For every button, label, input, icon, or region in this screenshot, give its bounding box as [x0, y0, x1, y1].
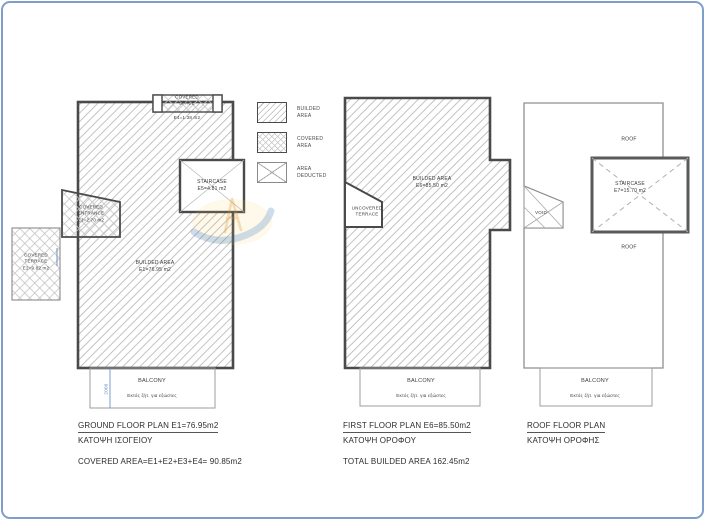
roof-balcony-label: BALCONY [581, 378, 609, 386]
ground-balcony-dimension: 2000 [104, 383, 109, 394]
legend-item-builded: BUILDED AREA [257, 102, 326, 123]
drawing-sheet: COVERED SPACE E4=1.38 m2 STAIRCASE E5=4.… [0, 0, 705, 520]
ground-staircase-label: STAIRCASE E5=4.81 m2 [197, 179, 227, 193]
legend-label: BUILDED AREA [297, 106, 320, 120]
legend-label: COVERED AREA [297, 136, 323, 150]
uncovered-terrace-label: UNCOVERED TERRACE [352, 206, 383, 219]
ground-builded-area-label: BUILDED AREA E1=76.95 m2 [136, 260, 175, 274]
first-floor-plan-drawing [330, 90, 530, 420]
roof-staircase-label: STAIRCASE E7=15.70 m2 [614, 181, 646, 195]
roof-outline-shape [524, 103, 683, 368]
covered-space-end-cap-right [213, 95, 222, 112]
first-floor-builded-area-label: BUILDED AREA E6=85.50 m2 [413, 176, 452, 190]
ground-balcony-note: Εκτός ζήτ. για εξώστες [127, 393, 176, 399]
roof-label-bottom: ROOF [621, 245, 636, 252]
roof-title: ROOF FLOOR PLAN [527, 421, 605, 433]
roof-balcony-note: Εκτός ζήτ. για εξώστες [570, 393, 619, 399]
roof-title-block: ROOF FLOOR PLAN ΚΑΤΟΨΗ ΟΡΟΦΗΣ [527, 421, 605, 445]
covered-terrace-label: COVERED TERRACE E2=9.82 m2 [23, 253, 49, 272]
first-floor-title: FIRST FLOOR PLAN E6=85.50m2 [343, 421, 471, 433]
ground-balcony-label: BALCONY [138, 378, 166, 386]
covered-space-label: COVERED SPACE [175, 95, 199, 108]
covered-entrance-label: COVERED ENTRANCE E3=2.70 m2 [78, 205, 104, 224]
ground-floor-title: GROUND FLOOR PLAN E1=76.95m2 [78, 421, 218, 433]
first-floor-balcony-label: BALCONY [407, 378, 435, 386]
covered-space-end-cap-left [153, 95, 162, 112]
void-label: VOID [535, 210, 547, 216]
legend-item-covered: COVERED AREA [257, 132, 326, 153]
covered-area-total: COVERED AREA=E1+E2+E3+E4= 90.85m2 [78, 457, 242, 466]
roof-subtitle: ΚΑΤΟΨΗ ΟΡΟΦΗΣ [527, 436, 605, 445]
first-floor-balcony-note: Εκτός ζήτ. για εξώστες [396, 393, 445, 399]
legend-label: AREA DEDUCTED [297, 166, 326, 180]
first-floor-subtitle: ΚΑΤΟΨΗ ΟΡΟΦΟΥ [343, 436, 471, 445]
legend: BUILDED AREA COVERED AREA AREA DEDUCTED [257, 102, 326, 183]
x-cross-swatch [257, 162, 287, 183]
first-floor-balcony-shape [360, 368, 480, 406]
cross-hatch-swatch [257, 132, 287, 153]
total-builded-area: TOTAL BUILDED AREA 162.45m2 [343, 457, 471, 466]
covered-space-area-label: E4=1.38 m2 [174, 115, 200, 121]
first-floor-title-block: FIRST FLOOR PLAN E6=85.50m2 ΚΑΤΟΨΗ ΟΡΟΦΟ… [343, 421, 471, 466]
ground-floor-subtitle: ΚΑΤΟΨΗ ΙΣΟΓΕΙΟΥ [78, 436, 242, 445]
diagonal-hatch-swatch [257, 102, 287, 123]
ground-floor-title-block: GROUND FLOOR PLAN E1=76.95m2 ΚΑΤΟΨΗ ΙΣΟΓ… [78, 421, 242, 466]
ground-balcony-shape [90, 368, 215, 408]
roof-floor-plan-drawing [505, 90, 705, 420]
roof-label-top: ROOF [621, 137, 636, 144]
legend-item-deducted: AREA DEDUCTED [257, 162, 326, 183]
first-floor-builded-area-shape [345, 98, 510, 368]
roof-balcony-shape [540, 368, 652, 406]
